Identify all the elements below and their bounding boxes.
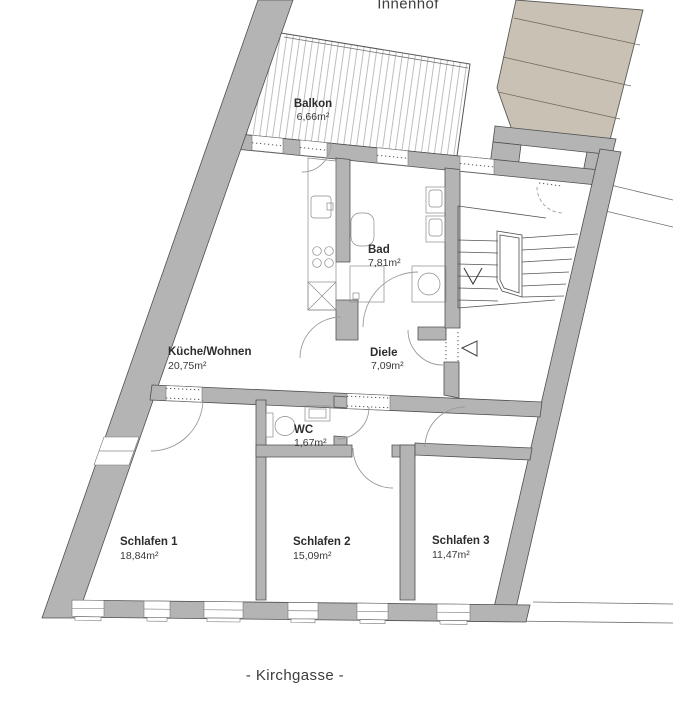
room-area-schlafen1: 18,84m²: [120, 550, 159, 562]
bathroom-fixtures: [350, 187, 446, 302]
room-name-bad: Bad: [368, 244, 390, 256]
floor-plan-page: Innenhof Balkon 6,66m² Bad 7,81m² Küche/…: [0, 0, 673, 720]
staircase: [458, 183, 578, 308]
shower: [350, 266, 384, 302]
innenhof-label: Innenhof: [377, 0, 439, 13]
room-area-diele: 7,09m²: [371, 360, 404, 372]
room-area-wc: 1,67m²: [294, 437, 327, 449]
toilet: [266, 413, 295, 437]
cooktop-burners: [313, 247, 334, 268]
entrance-triangle-icon: [462, 341, 477, 356]
room-name-diele: Diele: [370, 347, 398, 359]
washing-machine: [412, 266, 446, 302]
floor-plan: Innenhof Balkon 6,66m² Bad 7,81m² Küche/…: [0, 0, 673, 720]
bathtub: [351, 213, 374, 246]
oven-symbol: [308, 282, 336, 310]
neighbor-building: [497, 0, 643, 140]
room-area-kueche: 20,75m²: [168, 360, 207, 372]
room-area-schlafen3: 11,47m²: [432, 549, 470, 561]
room-area-balkon: 6,66m²: [297, 111, 330, 123]
kitchen-counter: [308, 158, 336, 310]
room-name-schlafen3: Schlafen 3: [432, 535, 490, 547]
room-name-kueche: Küche/Wohnen: [168, 346, 251, 358]
room-name-balkon: Balkon: [294, 98, 332, 110]
kirchgasse-label: - Kirchgasse -: [246, 667, 344, 684]
kitchen-sink: [311, 196, 331, 218]
room-name-schlafen1: Schlafen 1: [120, 536, 178, 548]
room-name-schlafen2: Schlafen 2: [293, 536, 351, 548]
room-area-bad: 7,81m²: [368, 257, 401, 269]
room-name-wc: WC: [294, 424, 313, 436]
room-area-schlafen2: 15,09m²: [293, 550, 332, 562]
entrance: [446, 330, 477, 363]
